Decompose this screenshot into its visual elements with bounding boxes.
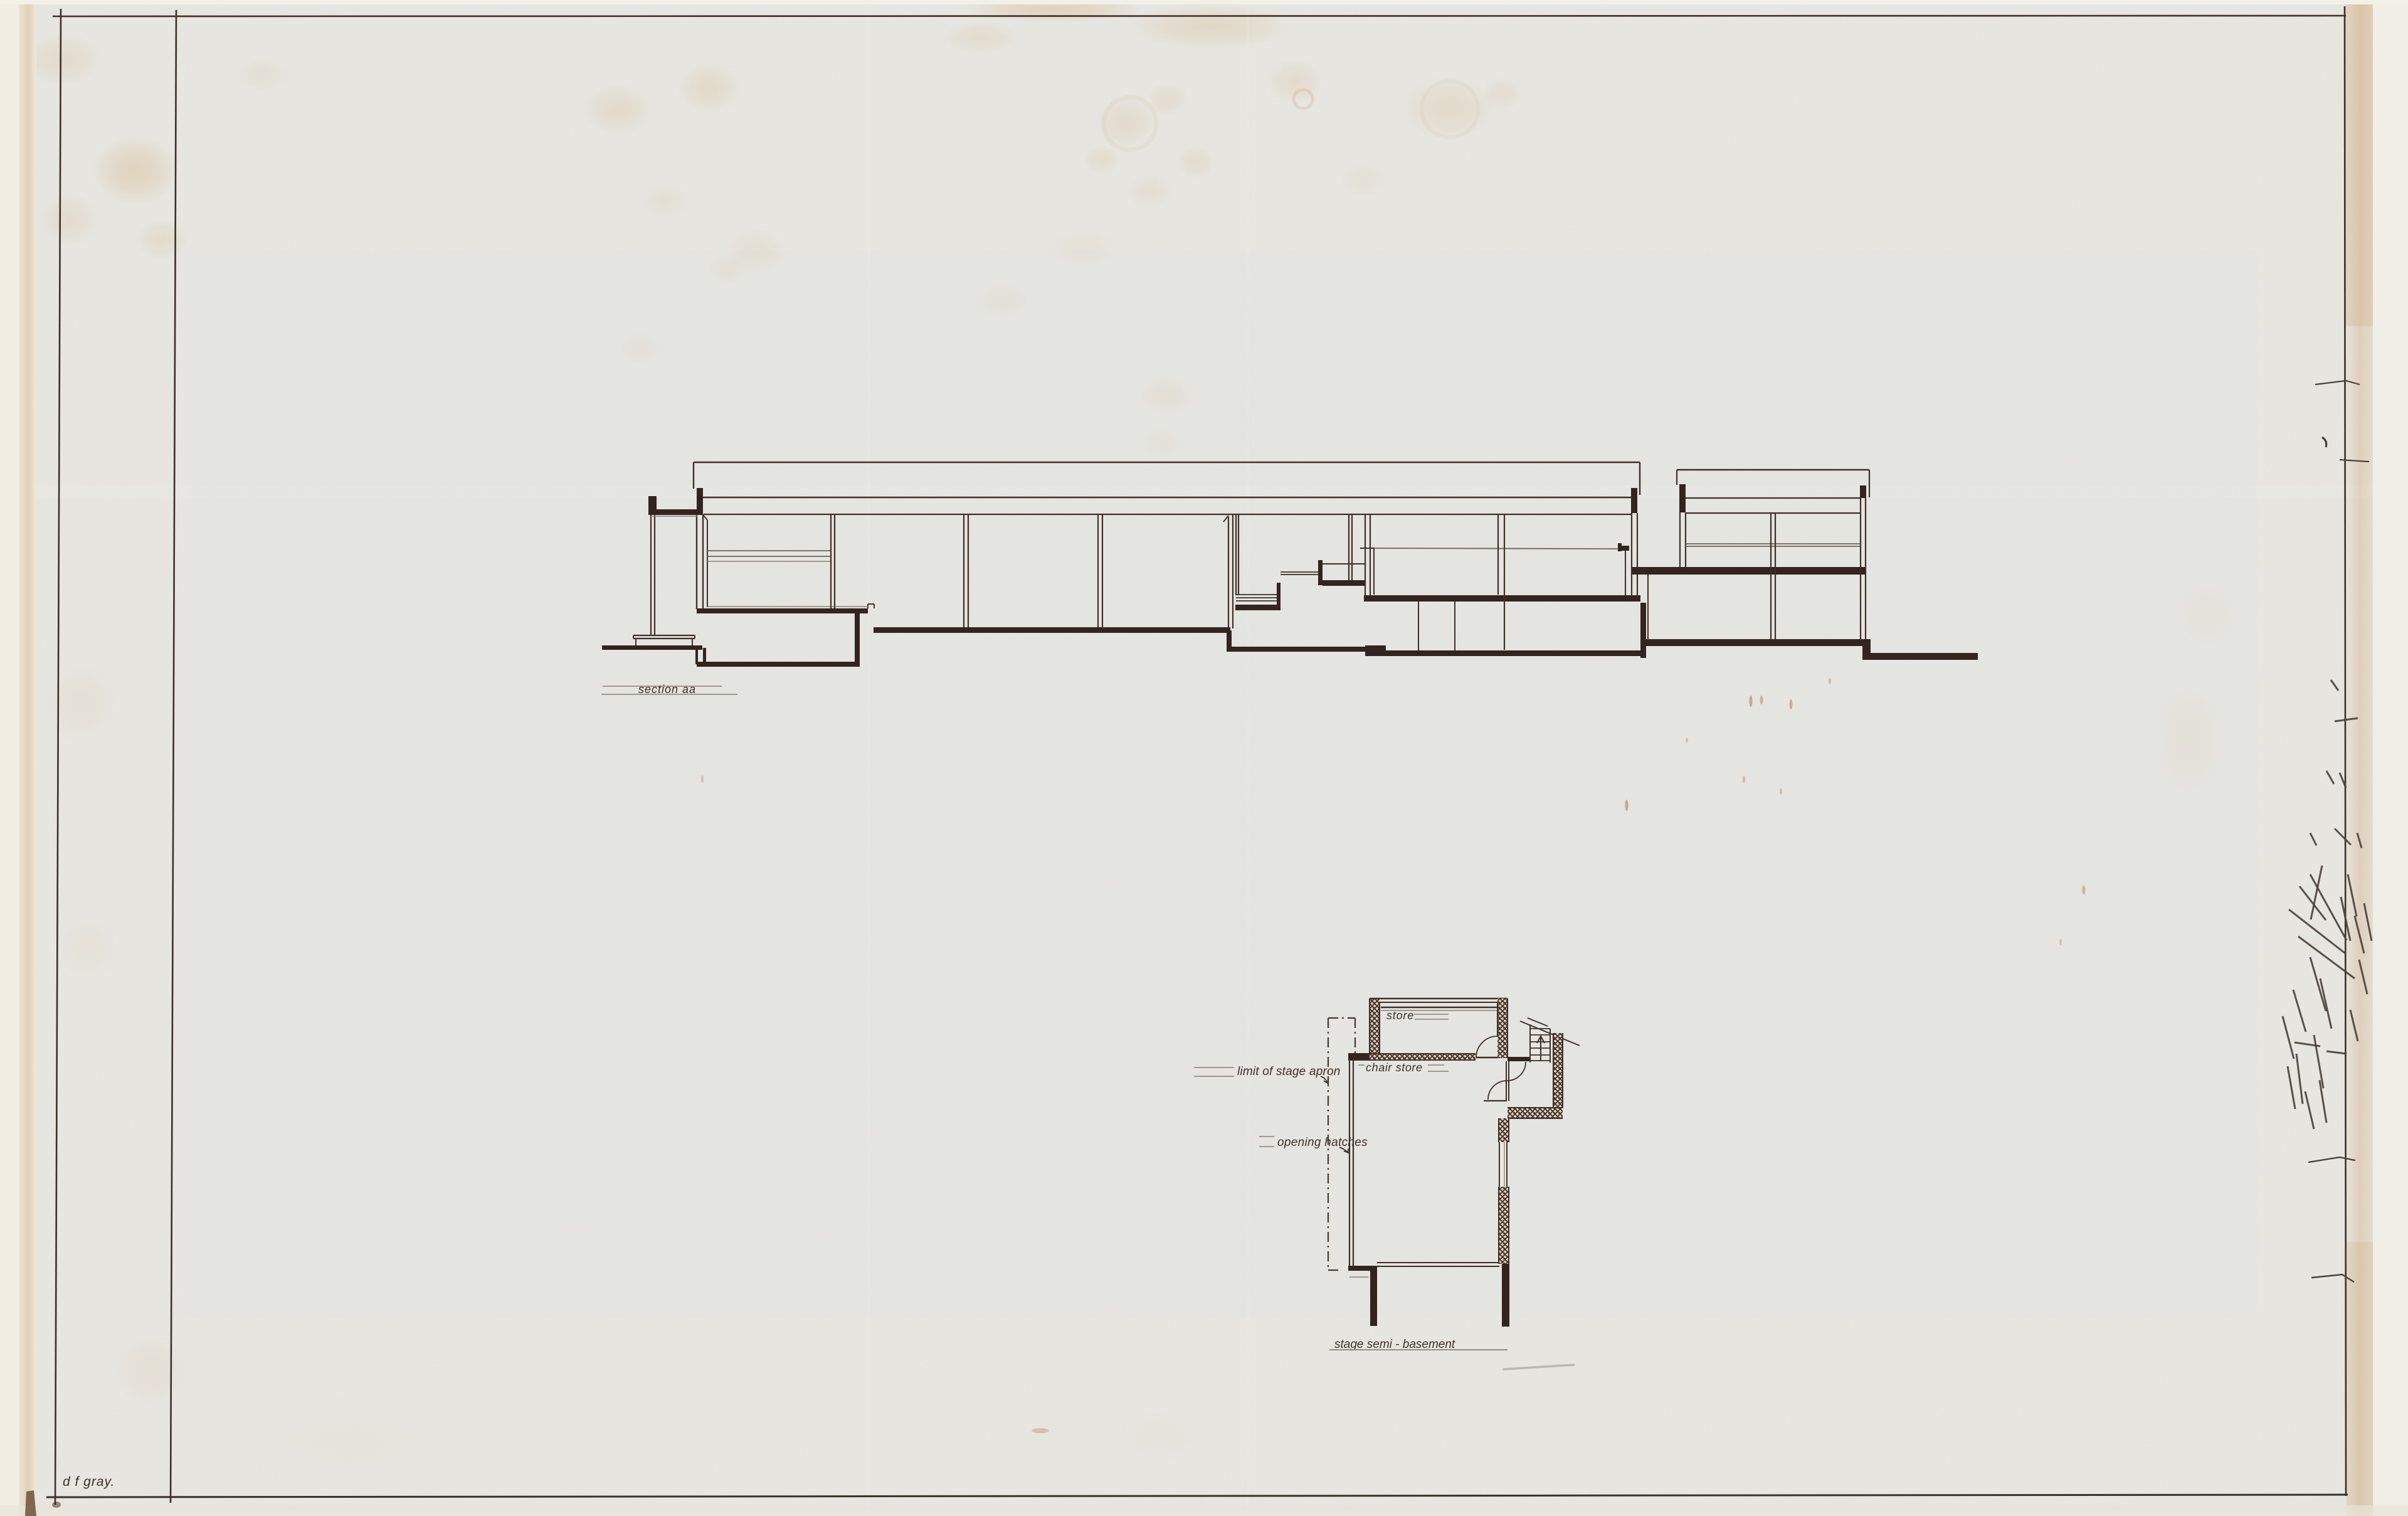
- svg-text:section aa: section aa: [638, 683, 696, 696]
- svg-text:chair store: chair store: [1366, 1061, 1423, 1074]
- svg-text:limit of stage apron: limit of stage apron: [1237, 1065, 1341, 1078]
- svg-text:d f gray.: d f gray.: [63, 1475, 115, 1489]
- svg-text:stage semi - basement: stage semi - basement: [1334, 1338, 1455, 1351]
- svg-text:opening hatches: opening hatches: [1277, 1136, 1368, 1149]
- svg-text:store: store: [1386, 1009, 1414, 1022]
